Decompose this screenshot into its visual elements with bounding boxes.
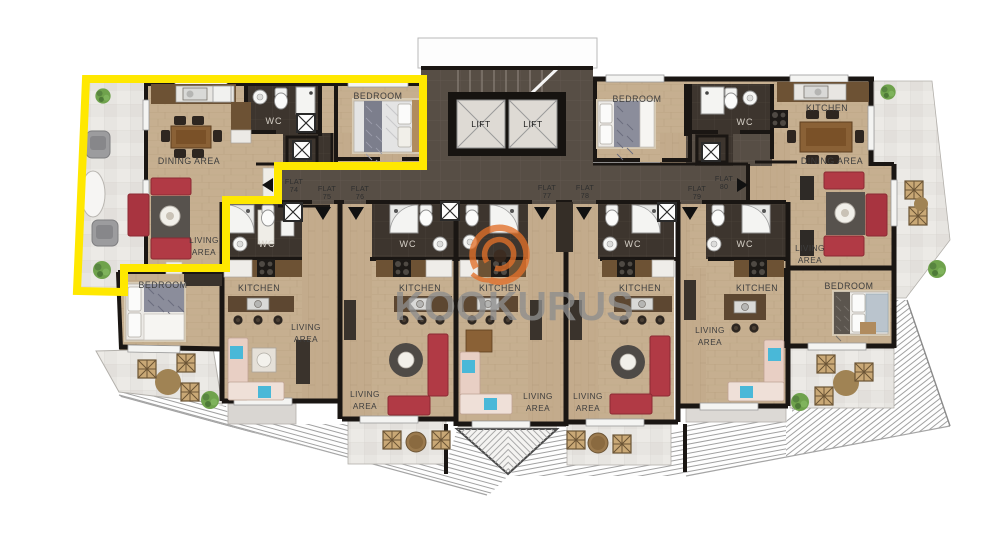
svg-text:79: 79 — [693, 192, 702, 201]
svg-text:DINING AREA: DINING AREA — [801, 156, 863, 166]
svg-text:LIFT: LIFT — [523, 119, 542, 129]
svg-text:WC: WC — [737, 239, 754, 249]
svg-text:WC: WC — [259, 239, 276, 249]
svg-text:78: 78 — [581, 191, 590, 200]
svg-text:WC: WC — [737, 117, 754, 127]
svg-text:LIVING: LIVING — [573, 392, 603, 401]
svg-text:AREA: AREA — [798, 256, 822, 265]
svg-text:AREA: AREA — [576, 404, 600, 413]
svg-text:LIVING: LIVING — [350, 390, 380, 399]
svg-text:WC: WC — [266, 116, 283, 126]
svg-text:75: 75 — [323, 192, 332, 201]
svg-text:77: 77 — [543, 191, 552, 200]
svg-text:80: 80 — [720, 182, 729, 191]
svg-text:KOOKURUS: KOOKURUS — [394, 283, 633, 329]
svg-text:KITCHEN: KITCHEN — [238, 283, 280, 293]
svg-text:AREA: AREA — [698, 338, 722, 347]
svg-text:KITCHEN: KITCHEN — [806, 103, 848, 113]
svg-text:AREA: AREA — [192, 248, 216, 257]
svg-text:LIVING: LIVING — [291, 323, 321, 332]
svg-text:74: 74 — [290, 185, 299, 194]
svg-text:AREA: AREA — [526, 404, 550, 413]
svg-text:BEDROOM: BEDROOM — [354, 91, 403, 101]
svg-text:LIFT: LIFT — [471, 119, 490, 129]
svg-text:AREA: AREA — [353, 402, 377, 411]
svg-text:KITCHEN: KITCHEN — [736, 283, 778, 293]
svg-text:WC: WC — [625, 239, 642, 249]
svg-text:BEDROOM: BEDROOM — [825, 281, 874, 291]
svg-text:BEDROOM: BEDROOM — [139, 280, 188, 290]
svg-text:LIVING: LIVING — [189, 236, 219, 245]
svg-text:DINING AREA: DINING AREA — [158, 156, 220, 166]
svg-text:LIVING: LIVING — [795, 244, 825, 253]
svg-text:BEDROOM: BEDROOM — [613, 94, 662, 104]
svg-text:76: 76 — [356, 192, 365, 201]
svg-text:AREA: AREA — [294, 335, 318, 344]
svg-text:WC: WC — [400, 239, 417, 249]
svg-text:LIVING: LIVING — [523, 392, 553, 401]
svg-text:LIVING: LIVING — [695, 326, 725, 335]
